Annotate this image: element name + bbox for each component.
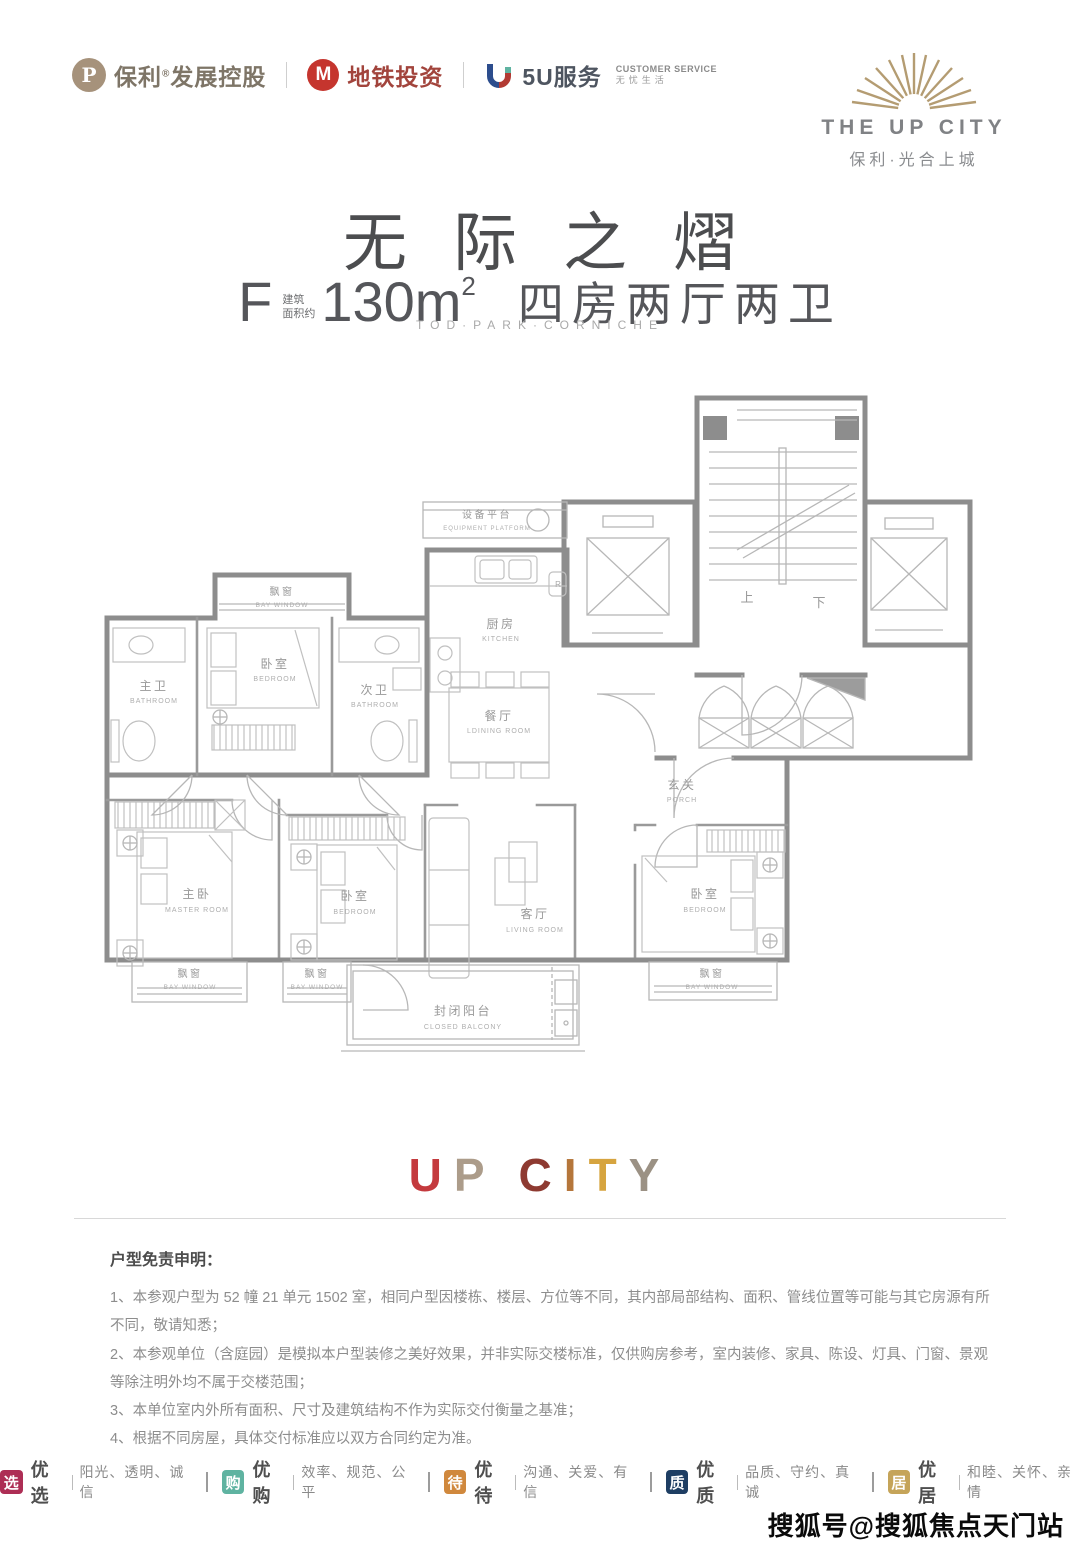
badge-desc: 效率、规范、公平	[301, 1462, 414, 1502]
tagline: TOD·PARK·CORNICHE	[0, 318, 1080, 332]
badge-desc: 品质、守约、真诚	[745, 1462, 858, 1502]
hall-closets	[699, 686, 853, 748]
watermark: 搜狐号@搜狐焦点天门站	[768, 1506, 1064, 1543]
room-label-kitchen-en: KITCHEN	[482, 636, 520, 643]
disclaimer-item: 3、本单位室内外所有面积、尺寸及建筑结构不作为实际交付衡量之基准；	[110, 1397, 990, 1425]
badge-yougou: 购 优购 效率、规范、公平	[222, 1456, 414, 1508]
room-label-master-bath-en: BATHROOM	[130, 698, 178, 705]
customer-service-line2: 无忧生活	[616, 75, 717, 86]
elevator-left	[587, 516, 669, 633]
badge-label: 优待	[474, 1456, 508, 1508]
badge-bar	[72, 1475, 73, 1490]
badge-label: 优选	[31, 1456, 65, 1508]
badge-bar	[737, 1475, 738, 1490]
badge-desc: 阳光、透明、诚信	[79, 1462, 192, 1502]
area-label-line1: 建筑	[282, 294, 315, 308]
room-label-bedroom-mid-zh: 卧室	[340, 888, 369, 903]
room-label-bay-top-en: BAY WINDOW	[256, 602, 309, 609]
room-label-balcony-en: CLOSED BALCONY	[424, 1024, 502, 1031]
badge-chip-icon: 选	[0, 1470, 23, 1494]
fridge-label: R	[555, 580, 561, 589]
header-logos: P 保利®发展控股 M 地铁投资 5U服务 CUSTOMER SERVICE 无…	[72, 58, 717, 92]
upcity-wordmark: UPCITY	[0, 1148, 1080, 1202]
badge-separator	[428, 1472, 429, 1492]
elevator-right	[871, 518, 947, 630]
badge-separator	[872, 1472, 873, 1492]
room-label-bay-left-en: BAY WINDOW	[164, 984, 217, 991]
room-label-bay-left-zh: 飘窗	[178, 967, 203, 980]
upcity-letter: I	[564, 1149, 589, 1201]
floor-plan-drawing: 上 下 R	[97, 390, 983, 1090]
master-bath-fixtures	[111, 628, 185, 762]
room-label-living-en: LIVING ROOM	[506, 927, 564, 934]
badge-youdai: 待 优待 沟通、关爱、有信	[444, 1456, 636, 1508]
room-label-equipment-en: EQUIPMENT PLATFORM	[443, 526, 530, 532]
poly-logo-text: 保利®发展控股	[114, 58, 266, 92]
badge-label: 优居	[918, 1456, 952, 1508]
upcity-letter: Y	[629, 1149, 672, 1201]
customer-service-text: CUSTOMER SERVICE 无忧生活	[616, 64, 717, 87]
bedroom-top-furniture	[207, 628, 319, 750]
badge-chip-icon: 待	[444, 1470, 467, 1494]
upcity-letter: C	[519, 1149, 564, 1201]
room-label-second-bath-en: BATHROOM	[351, 702, 399, 709]
five-u-logo-icon	[484, 60, 514, 90]
room-label-balcony-zh: 封闭阳台	[434, 1003, 492, 1018]
header-divider	[463, 62, 464, 88]
customer-service-line1: CUSTOMER SERVICE	[616, 64, 717, 75]
room-label-porch-zh: 玄关	[667, 777, 696, 792]
metro-logo-text: 地铁投资	[347, 58, 443, 92]
room-label-bay-top-zh: 飘窗	[270, 585, 295, 598]
poly-logo-icon: P	[72, 58, 106, 92]
five-u-logo-text: 5U服务	[522, 58, 601, 92]
badge-label: 优质	[696, 1456, 730, 1508]
five-u-logo: 5U服务 CUSTOMER SERVICE 无忧生活	[484, 58, 717, 92]
room-label-bedroom-top-en: BEDROOM	[253, 676, 296, 683]
metro-logo-icon: M	[307, 59, 339, 91]
room-label-equipment-zh: 设备平台	[462, 508, 512, 521]
badge-youzhi: 质 优质 品质、守约、真诚	[666, 1456, 858, 1508]
room-label-porch-en: PORCH	[667, 797, 697, 804]
disclaimer-item: 4、根据不同房屋，具体交付标准应以双方合同约定为准。	[110, 1425, 990, 1453]
badge-desc: 和睦、关怀、亲情	[967, 1462, 1080, 1502]
upcity-letter: U	[409, 1149, 454, 1201]
poly-name: 保利	[114, 64, 162, 90]
area-superscript: 2	[461, 271, 475, 301]
metro-logo: M 地铁投资	[307, 58, 443, 92]
living-furniture	[429, 818, 537, 978]
room-label-dining-en: LDINING ROOM	[467, 728, 531, 735]
badge-chip-icon: 质	[666, 1470, 689, 1494]
brand-name-cn: 保利·光合上城	[814, 146, 1014, 170]
poly-suffix: 发展控股	[170, 64, 266, 90]
room-label-master-en: MASTER ROOM	[165, 907, 229, 914]
room-label-second-bath-zh: 次卫	[360, 683, 389, 697]
badge-youxuan: 选 优选 阳光、透明、诚信	[0, 1456, 192, 1508]
badge-bar	[959, 1475, 960, 1490]
room-label-bedroom-top-zh: 卧室	[260, 656, 289, 671]
disclaimer-item: 2、本参观单位（含庭园）是模拟本户型装修之美好效果，并非实际交楼标准，仅供购房参…	[110, 1341, 990, 1398]
badge-desc: 沟通、关爱、有信	[523, 1462, 636, 1502]
poly-logo: P 保利®发展控股	[72, 58, 266, 92]
master-furniture	[115, 800, 245, 966]
header-divider	[286, 62, 287, 88]
room-label-dining-zh: 餐厅	[484, 708, 513, 723]
room-label-bedroom-right-en: BEDROOM	[683, 907, 726, 914]
room-label-living-zh: 客厅	[520, 906, 549, 921]
room-label-kitchen-zh: 厨房	[486, 616, 515, 631]
room-label-bay-mid-zh: 飘窗	[305, 967, 330, 980]
disclaimer-title: 户型免责申明：	[110, 1246, 990, 1270]
brand-logo: THE UP CITY 保利·光合上城	[814, 52, 1014, 170]
room-label-bay-mid-en: BAY WINDOW	[291, 984, 344, 991]
badge-bar	[515, 1475, 516, 1490]
service-badges: 选 优选 阳光、透明、诚信 购 优购 效率、规范、公平 待 优待 沟通、关爱、有…	[0, 1456, 1080, 1508]
room-label-bedroom-right-zh: 卧室	[690, 886, 719, 901]
badge-chip-icon: 购	[222, 1470, 245, 1494]
badge-chip-icon: 居	[888, 1470, 911, 1494]
brand-name: THE UP CITY	[814, 116, 1014, 140]
room-label-bay-right-en: BAY WINDOW	[686, 984, 739, 991]
room-label-master-bath-zh: 主卫	[139, 679, 168, 693]
room-label-bedroom-mid-en: BEDROOM	[333, 909, 376, 916]
badge-youju: 居 优居 和睦、关怀、亲情	[888, 1456, 1080, 1508]
room-label-bay-right-zh: 飘窗	[700, 967, 725, 980]
badge-label: 优购	[252, 1456, 286, 1508]
room-label-master-zh: 主卧	[182, 887, 211, 901]
dining-set	[449, 672, 549, 778]
upcity-letter: P	[454, 1149, 497, 1201]
badge-bar	[293, 1475, 294, 1490]
floor-plan: 上 下 R	[97, 390, 983, 1090]
stairs-down-label: 下	[812, 595, 825, 610]
badge-separator	[650, 1472, 651, 1492]
stairs	[709, 410, 857, 584]
sunrise-rays-icon	[839, 52, 989, 114]
disclaimer-item: 1、本参观户型为 52 幢 21 单元 1502 室，相同户型因楼栋、楼层、方位…	[110, 1284, 990, 1341]
badge-separator	[206, 1472, 207, 1492]
divider-line	[74, 1218, 1006, 1219]
disclaimer: 户型免责申明： 1、本参观户型为 52 幢 21 单元 1502 室，相同户型因…	[110, 1246, 990, 1454]
upcity-letter: T	[589, 1149, 629, 1201]
stairs-up-label: 上	[740, 590, 753, 605]
